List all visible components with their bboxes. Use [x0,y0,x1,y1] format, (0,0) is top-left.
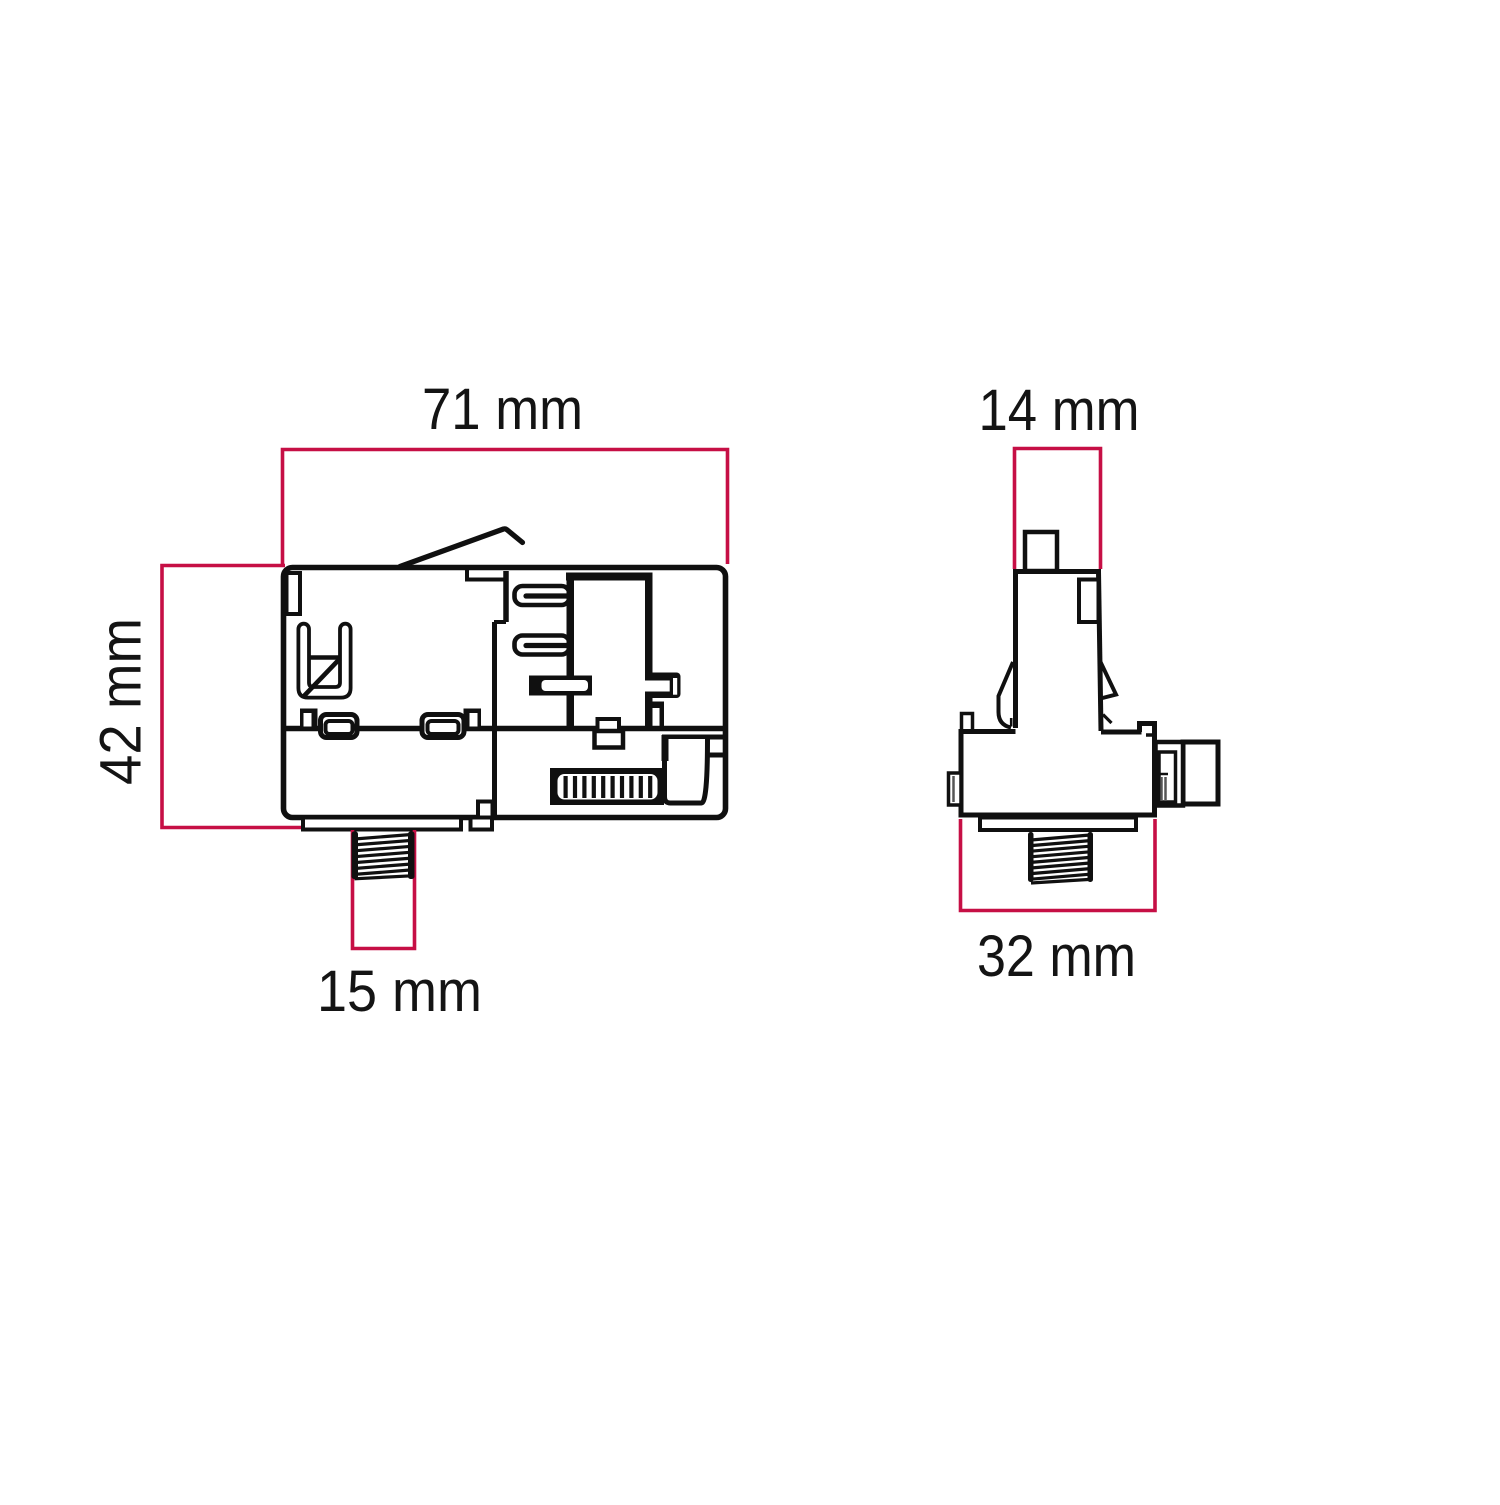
svg-text:32 mm: 32 mm [977,924,1136,989]
svg-text:42 mm: 42 mm [89,618,154,785]
svg-text:71 mm: 71 mm [422,377,583,442]
svg-text:15 mm: 15 mm [317,959,482,1024]
svg-text:14 mm: 14 mm [979,378,1140,443]
